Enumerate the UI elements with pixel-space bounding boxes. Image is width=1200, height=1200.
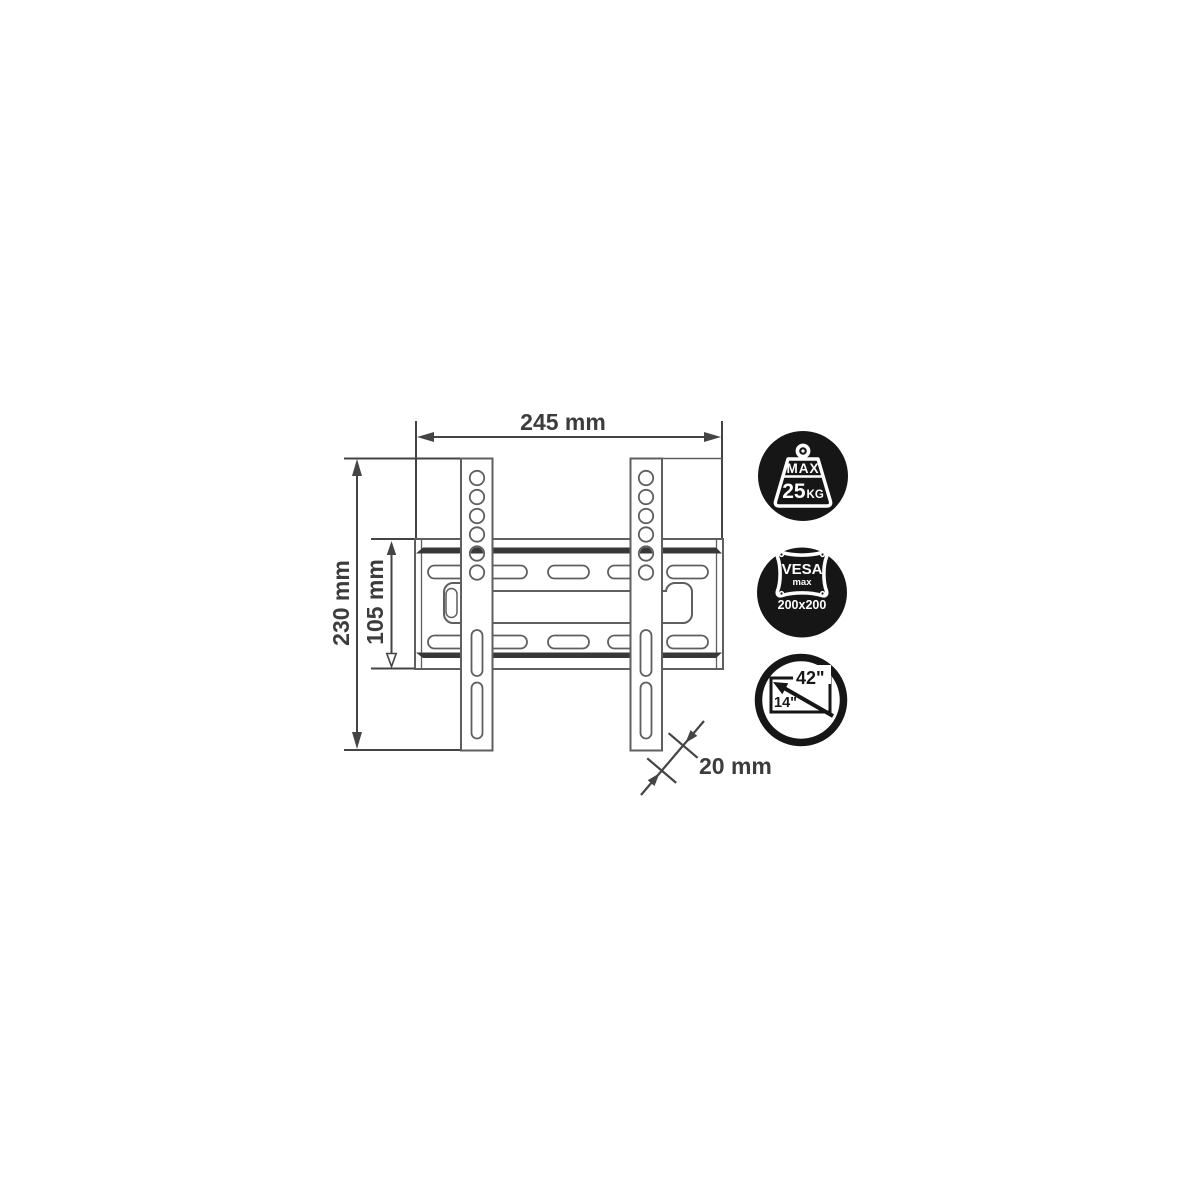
mounting-hole (639, 509, 653, 523)
arrowhead-up-icon (352, 459, 362, 476)
screw-hole-dot (780, 592, 782, 594)
plate-slot (548, 636, 589, 649)
mounting-hole (639, 490, 653, 504)
badge-screen-size: 42" 14" (759, 658, 844, 743)
mounting-hole (639, 565, 653, 579)
arrowhead-down-icon (352, 732, 362, 749)
mounting-hole (470, 565, 484, 579)
vesa-qualifier-label: max (792, 577, 812, 588)
product-diagram-page: 245 mm 230 mm 105 mm (0, 0, 1200, 1200)
max-weight-value: 25 (782, 480, 806, 503)
cutout-left-tab (446, 589, 457, 618)
depth-dimension-label: 20 mm (699, 753, 772, 779)
mounting-hole (470, 509, 484, 523)
max-weight-unit: KG (807, 489, 824, 501)
mounting-hole (639, 471, 653, 485)
mounting-hole (470, 471, 484, 485)
left-rail (461, 459, 493, 751)
vesa-pattern-label: 200x200 (778, 598, 827, 612)
plate-slot (667, 636, 708, 649)
height-dimension-label: 230 mm (328, 560, 354, 646)
vesa-name-label: VESA (782, 561, 823, 578)
arrowhead-down-open-icon (387, 654, 396, 667)
right-rail (631, 459, 663, 751)
plate-slot (667, 566, 708, 579)
plate-slot (548, 566, 589, 579)
mounting-hole (470, 527, 484, 541)
max-weight-label: MAX (787, 461, 820, 476)
screw-hole-dot (780, 553, 782, 555)
plate-height-dimension-label: 105 mm (362, 559, 388, 645)
screen-max-size-label: 42" (796, 668, 825, 688)
screw-hole-dot (821, 592, 823, 594)
arrowhead-right-icon (704, 432, 721, 442)
arrowhead-left-icon (417, 432, 434, 442)
mounting-hole (470, 490, 484, 504)
arrowhead-up-icon (387, 541, 396, 555)
mounting-hole (639, 527, 653, 541)
badge-vesa: VESA max 200x200 (757, 548, 847, 638)
screen-min-size-label: 14" (774, 695, 797, 711)
weight-handle-dot (801, 449, 804, 452)
screw-hole-dot (821, 553, 823, 555)
width-dimension-label: 245 mm (520, 409, 606, 435)
badge-max-weight: MAX 25KG (758, 431, 848, 521)
technical-drawing: 245 mm 230 mm 105 mm (0, 0, 1200, 1200)
